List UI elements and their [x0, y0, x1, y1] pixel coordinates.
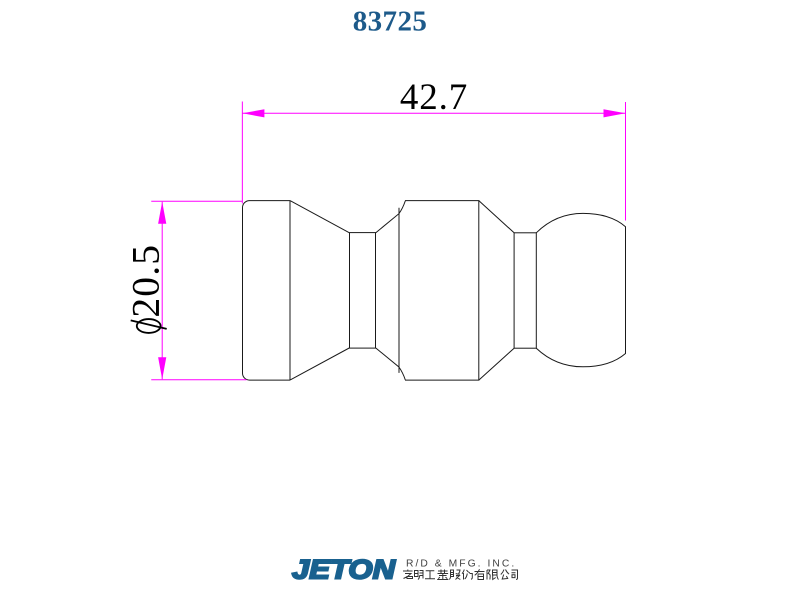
- svg-text:83725: 83725: [353, 6, 428, 38]
- svg-text:R/D & MFG. INC.: R/D & MFG. INC.: [406, 559, 516, 570]
- svg-text:42.7: 42.7: [400, 77, 468, 118]
- svg-text:JETON: JETON: [292, 555, 396, 585]
- svg-text:20.5: 20.5: [124, 244, 168, 318]
